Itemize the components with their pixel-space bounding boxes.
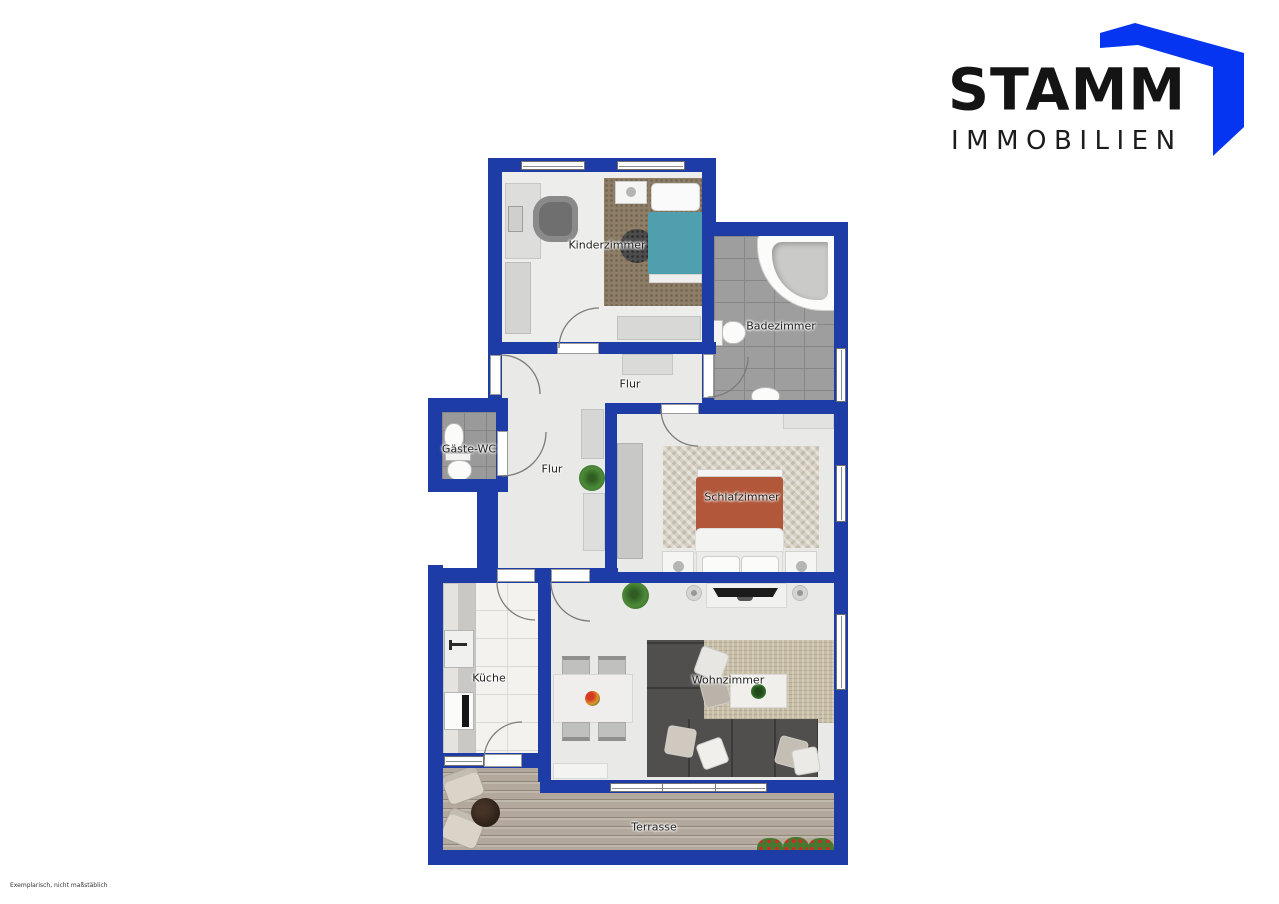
label-gaeste-wc: Gäste-WC xyxy=(442,443,496,456)
label-schlafzimmer: Schlafzimmer xyxy=(704,491,779,504)
label-flur-oben: Flur xyxy=(620,378,641,391)
label-wohnzimmer: Wohnzimmer xyxy=(692,674,764,687)
floorplan-page: STAMM IMMOBILIEN xyxy=(0,0,1279,904)
label-terrasse: Terrasse xyxy=(631,821,676,834)
label-flur: Flur xyxy=(542,463,563,476)
label-badezimmer: Badezimmer xyxy=(746,320,816,333)
door-swing-arcs xyxy=(0,0,1279,904)
label-kinderzimmer: Kinderzimmer xyxy=(568,239,645,252)
label-kueche: Küche xyxy=(472,672,505,685)
disclaimer-text: Exemplarisch, nicht maßstäblich xyxy=(10,882,108,889)
